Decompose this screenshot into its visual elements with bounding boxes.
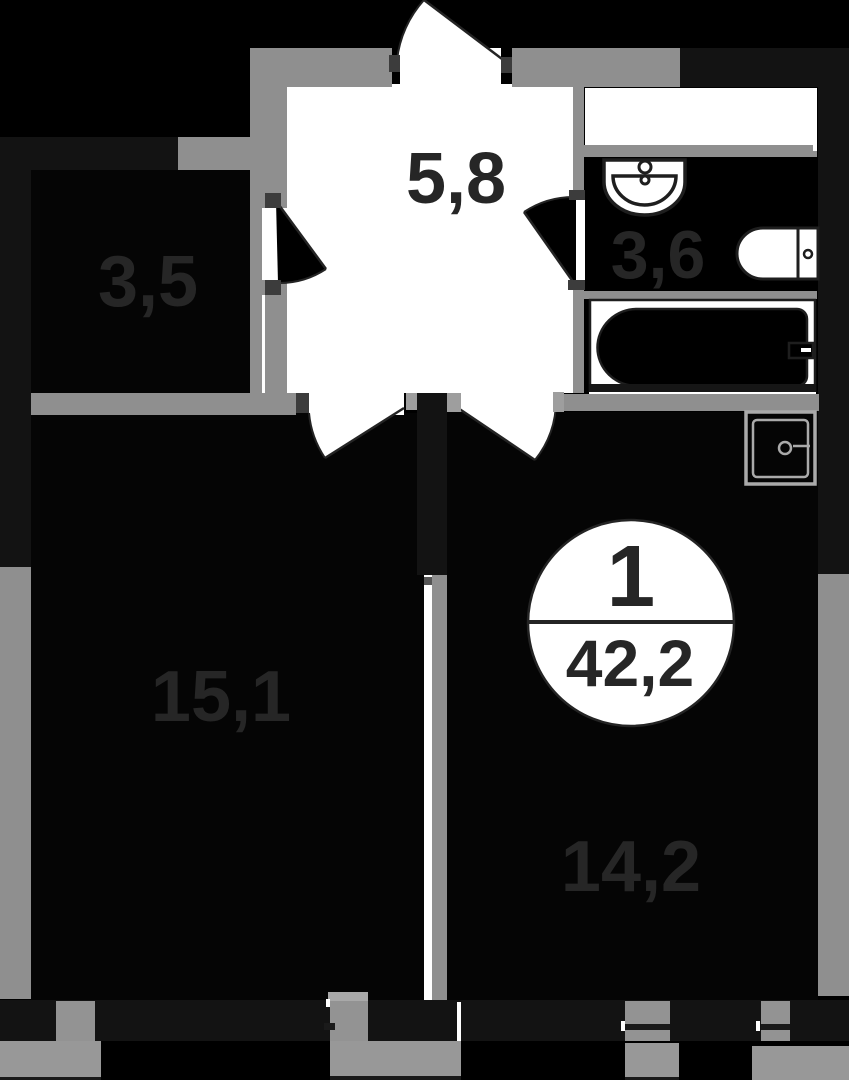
svg-text:5,8: 5,8 bbox=[406, 139, 506, 219]
svg-text:15,1: 15,1 bbox=[151, 657, 291, 737]
svg-text:42,2: 42,2 bbox=[566, 626, 694, 700]
svg-text:3,5: 3,5 bbox=[98, 242, 198, 322]
svg-text:3,6: 3,6 bbox=[611, 217, 706, 293]
svg-text:1: 1 bbox=[607, 528, 655, 625]
svg-text:14,2: 14,2 bbox=[561, 827, 701, 907]
